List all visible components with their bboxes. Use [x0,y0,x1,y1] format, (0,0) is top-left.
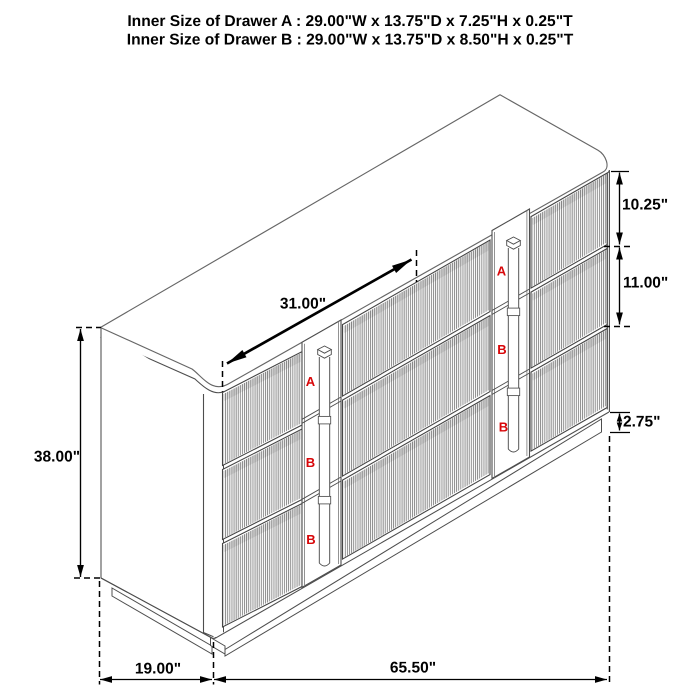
svg-text:2.75": 2.75" [623,414,661,431]
svg-text:B: B [499,420,508,435]
svg-text:B: B [306,455,315,470]
svg-text:B: B [306,532,315,547]
svg-text:19.00": 19.00" [135,661,181,678]
svg-text:31.00": 31.00" [280,296,326,313]
svg-text:38.00": 38.00" [34,449,80,466]
svg-text:A: A [306,374,316,389]
svg-text:Inner Size of Drawer B : 29.00: Inner Size of Drawer B : 29.00"W x 13.75… [127,32,574,49]
svg-text:Inner Size of Drawer A : 29.00: Inner Size of Drawer A : 29.00"W x 13.75… [127,13,573,30]
svg-text:11.00": 11.00" [623,275,668,292]
svg-text:65.50": 65.50" [390,660,436,677]
svg-text:B: B [497,342,506,357]
svg-text:A: A [497,264,507,279]
svg-text:10.25": 10.25" [622,197,668,214]
